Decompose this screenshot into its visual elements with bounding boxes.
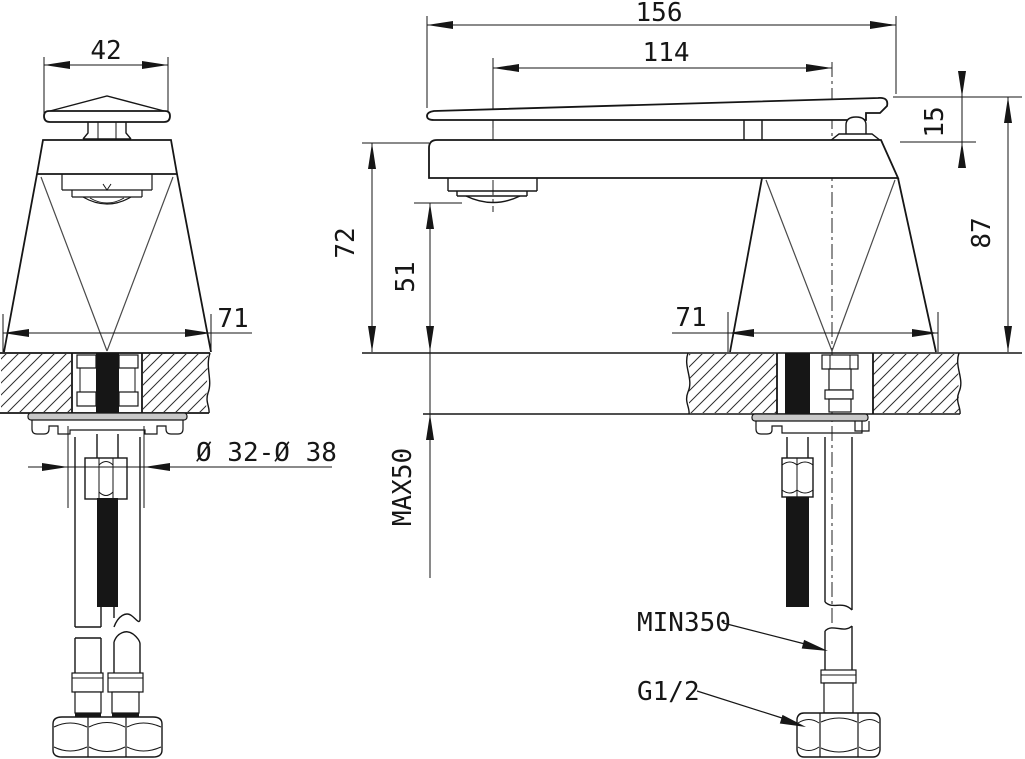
dim-51-label: 51 <box>391 261 421 292</box>
dim-42-label: 42 <box>90 36 121 66</box>
drawing-page: 42 <box>0 0 1025 759</box>
base-gasket-side <box>752 414 868 421</box>
min350-label: MIN350 <box>637 608 731 638</box>
dim-71-front-label: 71 <box>217 304 248 334</box>
dim-hole-label: Ø 32-Ø 38 <box>196 438 337 468</box>
mounting-nut-front <box>85 458 127 499</box>
dim-max50-label: MAX50 <box>388 448 418 526</box>
threaded-rod-side-upper <box>785 353 810 414</box>
deck-hatch-side-right <box>873 354 959 413</box>
faucet-technical-drawing: 42 <box>0 0 1025 759</box>
dim-71-side-label: 71 <box>675 303 706 333</box>
base-gasket <box>28 413 187 420</box>
mounting-nut-side <box>782 458 813 497</box>
deck-hatch-side-left <box>689 354 777 413</box>
body-collar <box>37 140 177 174</box>
hose-nut-side <box>797 713 880 757</box>
dim-114-label: 114 <box>643 38 690 68</box>
spout-body <box>429 140 898 178</box>
hose-fitting-side <box>821 670 856 713</box>
dim-15-label: 15 <box>920 106 950 137</box>
threaded-rod-side-lower <box>786 497 809 607</box>
deck-hatch-right <box>143 354 208 412</box>
dim-87-label: 87 <box>967 217 997 248</box>
threaded-rod-front-upper <box>96 353 119 413</box>
threaded-rod-front-lower <box>97 498 118 607</box>
deck-hatch-left <box>1 354 71 412</box>
dim-156-label: 156 <box>636 0 683 28</box>
hose-nuts-front <box>53 717 162 757</box>
g12-label: G1/2 <box>637 677 700 707</box>
dim-72-label: 72 <box>331 227 361 258</box>
